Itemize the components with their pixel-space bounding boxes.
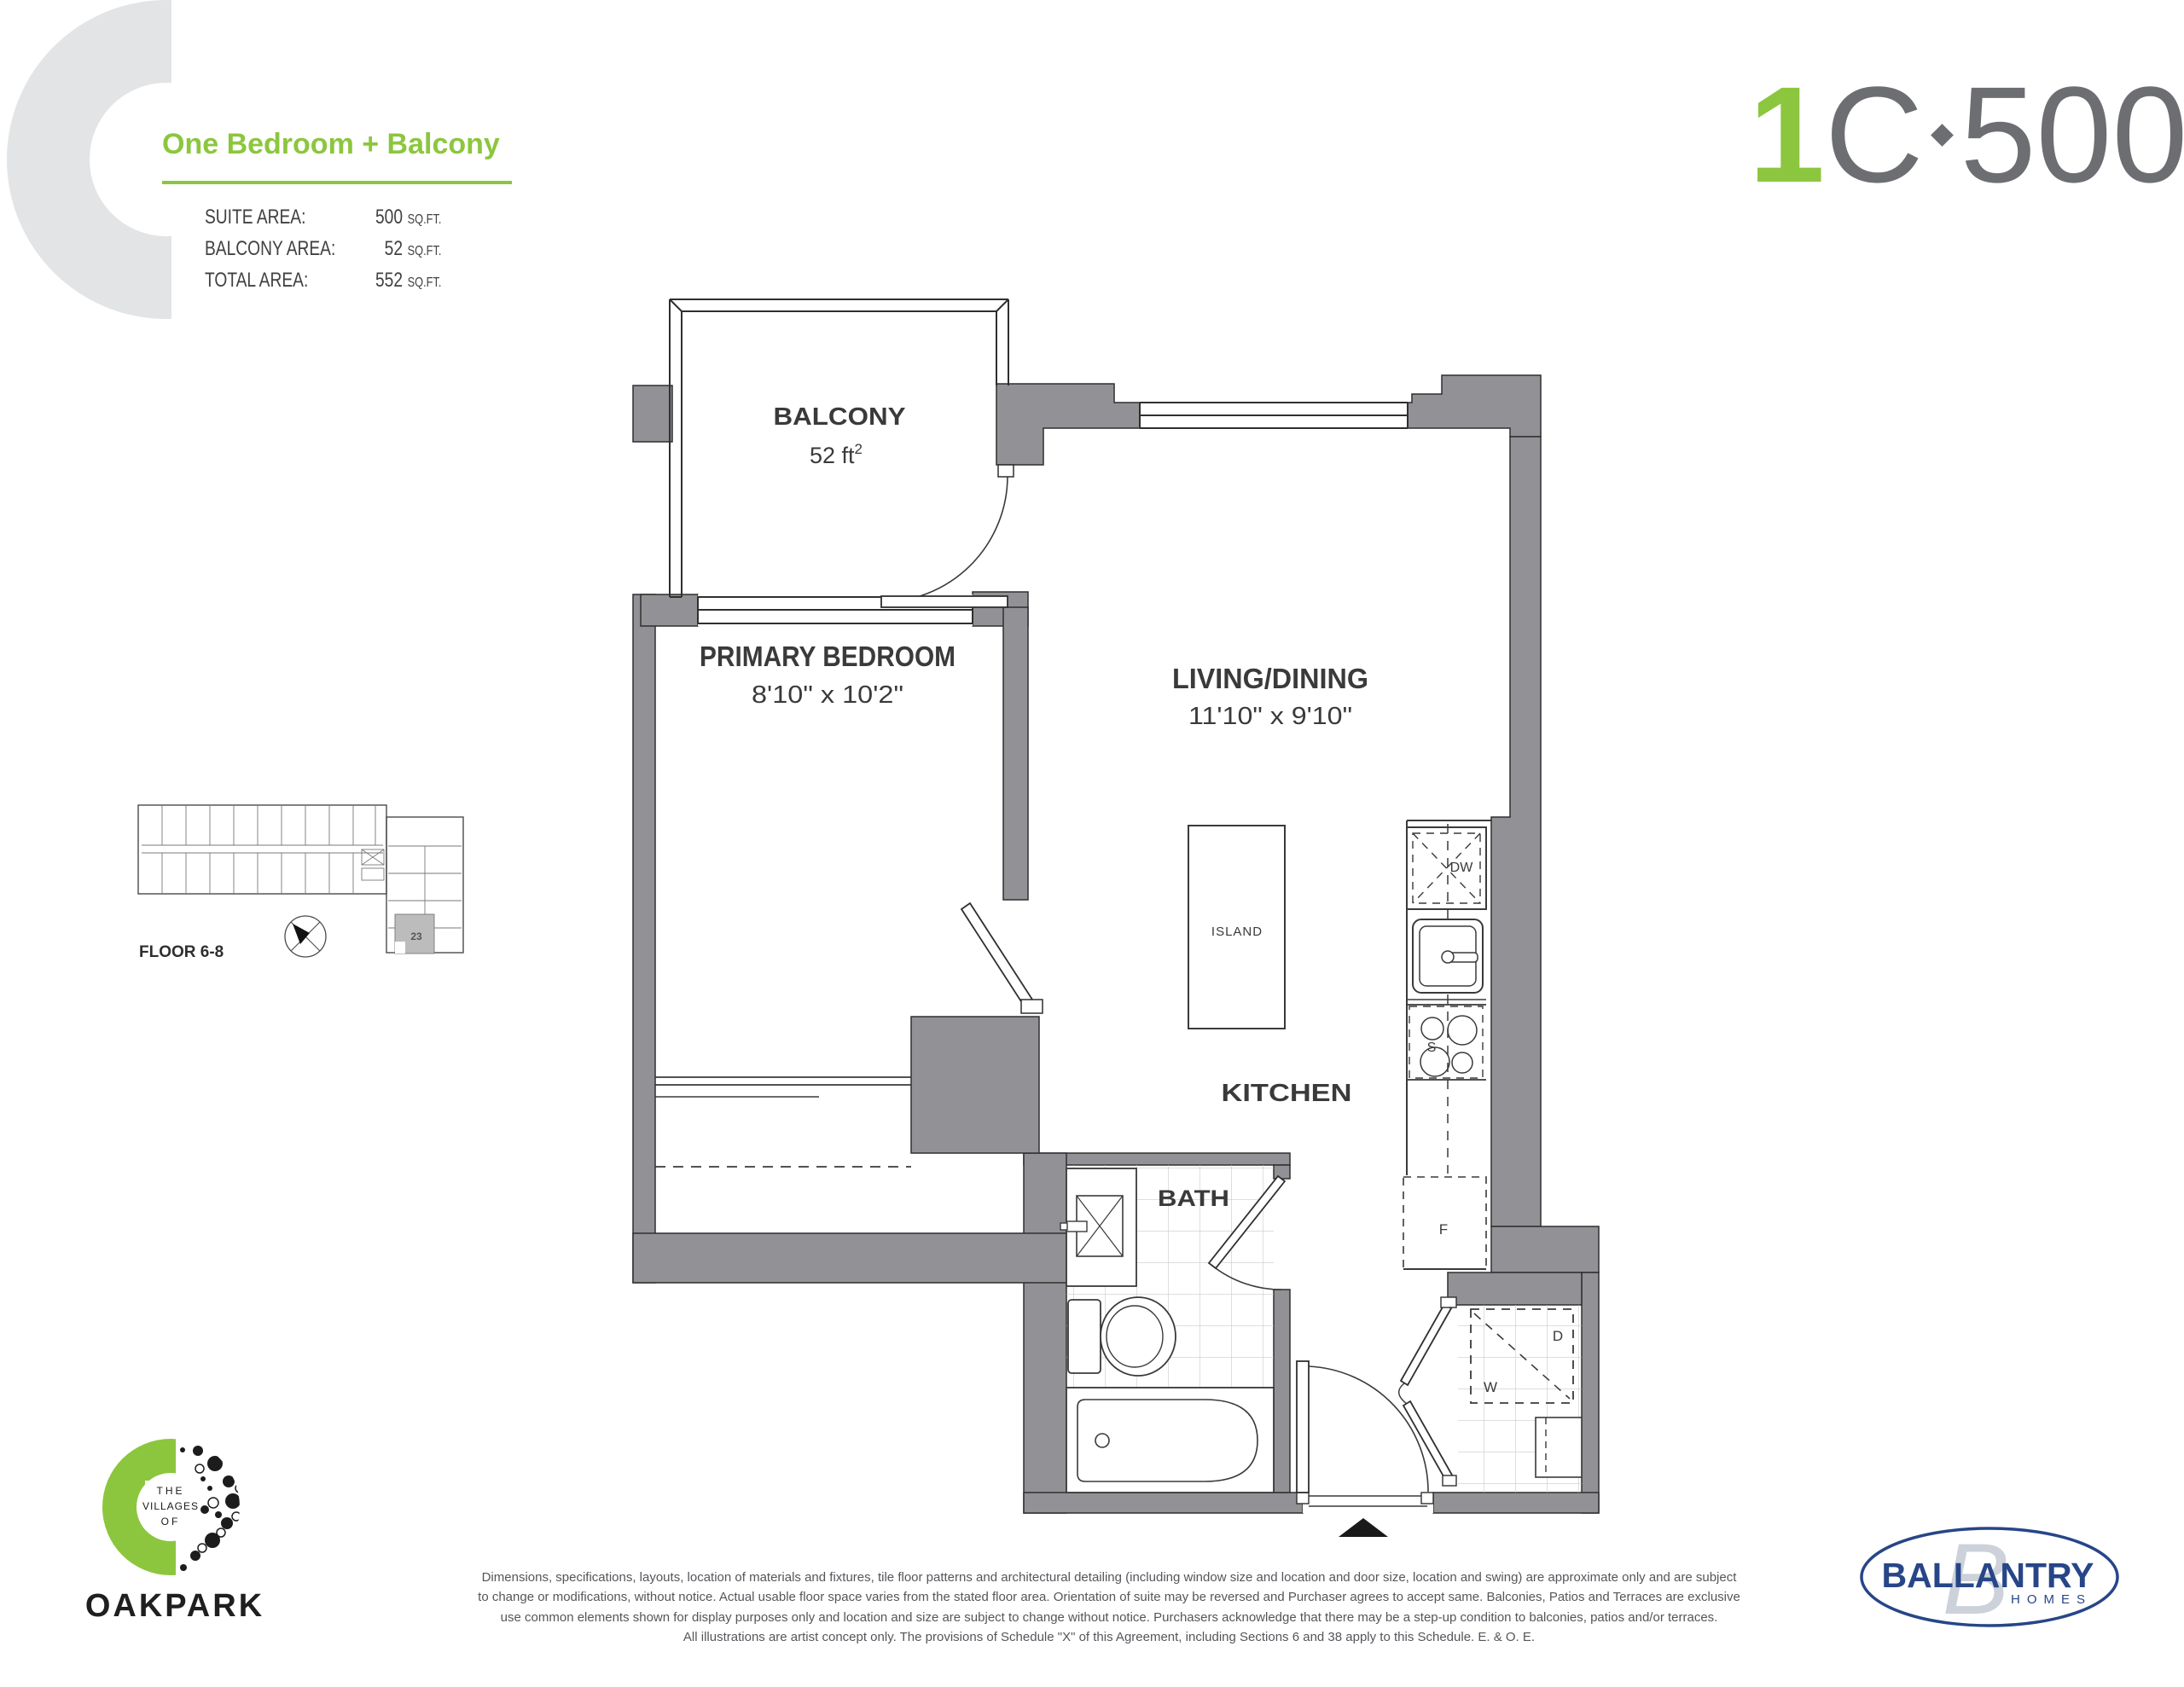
kitchen-counter bbox=[1407, 820, 1491, 1175]
key-plan: 23 FLOOR 6-8 bbox=[138, 805, 463, 961]
balcony-area-row: BALCONY AREA:52SQ.FT. bbox=[205, 236, 441, 268]
ballantry-sub: HOMES bbox=[2011, 1592, 2092, 1607]
floorplan-page: BALCONY 52 ft2 PRIMARY BEDROOM 8'10" x 1… bbox=[0, 0, 2184, 1687]
balcony-area-unit: SQ.FT. bbox=[408, 244, 442, 258]
bedroom-label: PRIMARY BEDROOM bbox=[700, 641, 955, 672]
closet-bifold-doors bbox=[1399, 1297, 1456, 1486]
total-area-unit: SQ.FT. bbox=[408, 275, 442, 290]
suite-area-label: SUITE AREA: bbox=[205, 205, 322, 230]
plan-code-digit: 1 bbox=[1749, 67, 1825, 203]
disclaimer-line-3: use common elements shown for display pu… bbox=[478, 1608, 1740, 1627]
bath-label: BATH bbox=[1158, 1186, 1229, 1211]
key-plan-floor-label: FLOOR 6-8 bbox=[139, 943, 224, 961]
oakpark-pre3: OF bbox=[161, 1516, 181, 1528]
page-title: One Bedroom + Balcony bbox=[162, 128, 500, 161]
washer-label: W bbox=[1484, 1379, 1497, 1395]
legal-disclaimer: Dimensions, specifications, layouts, loc… bbox=[478, 1568, 1740, 1647]
toilet bbox=[1068, 1297, 1176, 1376]
living-label: LIVING/DINING bbox=[1172, 663, 1368, 694]
total-area-label: TOTAL AREA: bbox=[205, 268, 322, 293]
disclaimer-line-4: All illustrations are artist concept onl… bbox=[478, 1627, 1740, 1647]
balcony-label: BALCONY bbox=[774, 403, 906, 431]
compass-icon bbox=[285, 916, 326, 957]
living-dims: 11'10" x 9'10" bbox=[1188, 703, 1352, 730]
stove bbox=[1407, 1005, 1486, 1080]
fridge-label: F bbox=[1439, 1221, 1448, 1238]
dishwasher bbox=[1407, 827, 1486, 909]
dryer-label: D bbox=[1553, 1328, 1563, 1344]
disclaimer-line-2: to change or modifications, without noti… bbox=[478, 1587, 1740, 1607]
kitchen-sink bbox=[1413, 919, 1483, 993]
bedroom-door bbox=[961, 903, 1043, 1013]
balcony-area-value: 52 bbox=[322, 236, 403, 262]
oakpark-wordmark: OAKPARK bbox=[0, 1588, 350, 1625]
suite-area-unit: SQ.FT. bbox=[408, 212, 442, 227]
bathroom bbox=[1060, 1165, 1285, 1493]
stove-label: S bbox=[1427, 1041, 1437, 1055]
title-underline bbox=[162, 181, 512, 184]
plan-code-letter: C bbox=[1825, 67, 1924, 203]
diamond-separator-icon bbox=[1931, 124, 1954, 147]
balcony-door bbox=[881, 465, 1014, 607]
key-plan-unit-highlight: 23 bbox=[395, 914, 434, 954]
total-area-row: TOTAL AREA:552SQ.FT. bbox=[205, 268, 441, 299]
island-label: ISLAND bbox=[1211, 925, 1263, 939]
balcony-area-label: BALCONY AREA: bbox=[205, 236, 322, 262]
bathtub bbox=[1066, 1388, 1274, 1493]
floor-plan: BALCONY 52 ft2 PRIMARY BEDROOM 8'10" x 1… bbox=[633, 299, 1599, 1537]
bedroom-dims: 8'10" x 10'2" bbox=[752, 681, 903, 709]
suite-area-value: 500 bbox=[322, 205, 403, 230]
bedroom-closet bbox=[655, 1077, 911, 1167]
entry bbox=[1297, 1361, 1433, 1537]
plan-code-sqft: 500 bbox=[1960, 67, 2184, 203]
oakpark-pre2: VILLAGES bbox=[142, 1500, 199, 1512]
ballantry-logo: B BALLANTRY HOMES bbox=[1862, 1523, 2117, 1636]
plan-code: 1C500 SQ. FT. bbox=[1749, 67, 2184, 203]
bath-sink bbox=[1060, 1168, 1136, 1286]
living-window bbox=[1140, 400, 1408, 431]
key-plan-unit-number: 23 bbox=[410, 930, 422, 942]
oakpark-pre1: THE bbox=[157, 1485, 185, 1497]
total-area-value: 552 bbox=[322, 268, 403, 293]
dishwasher-label: DW bbox=[1450, 861, 1474, 875]
area-table: SUITE AREA:500SQ.FT. BALCONY AREA:52SQ.F… bbox=[205, 205, 441, 299]
disclaimer-line-1: Dimensions, specifications, layouts, loc… bbox=[478, 1568, 1740, 1587]
entry-arrow-icon bbox=[1339, 1518, 1388, 1537]
kitchen-label: KITCHEN bbox=[1222, 1080, 1352, 1107]
balcony-area: 52 ft2 bbox=[810, 441, 863, 468]
oakpark-logo: THE VILLAGES OF bbox=[102, 1433, 246, 1578]
ballantry-name: BALLANTRY bbox=[1881, 1556, 2094, 1595]
suite-area-row: SUITE AREA:500SQ.FT. bbox=[205, 205, 441, 236]
